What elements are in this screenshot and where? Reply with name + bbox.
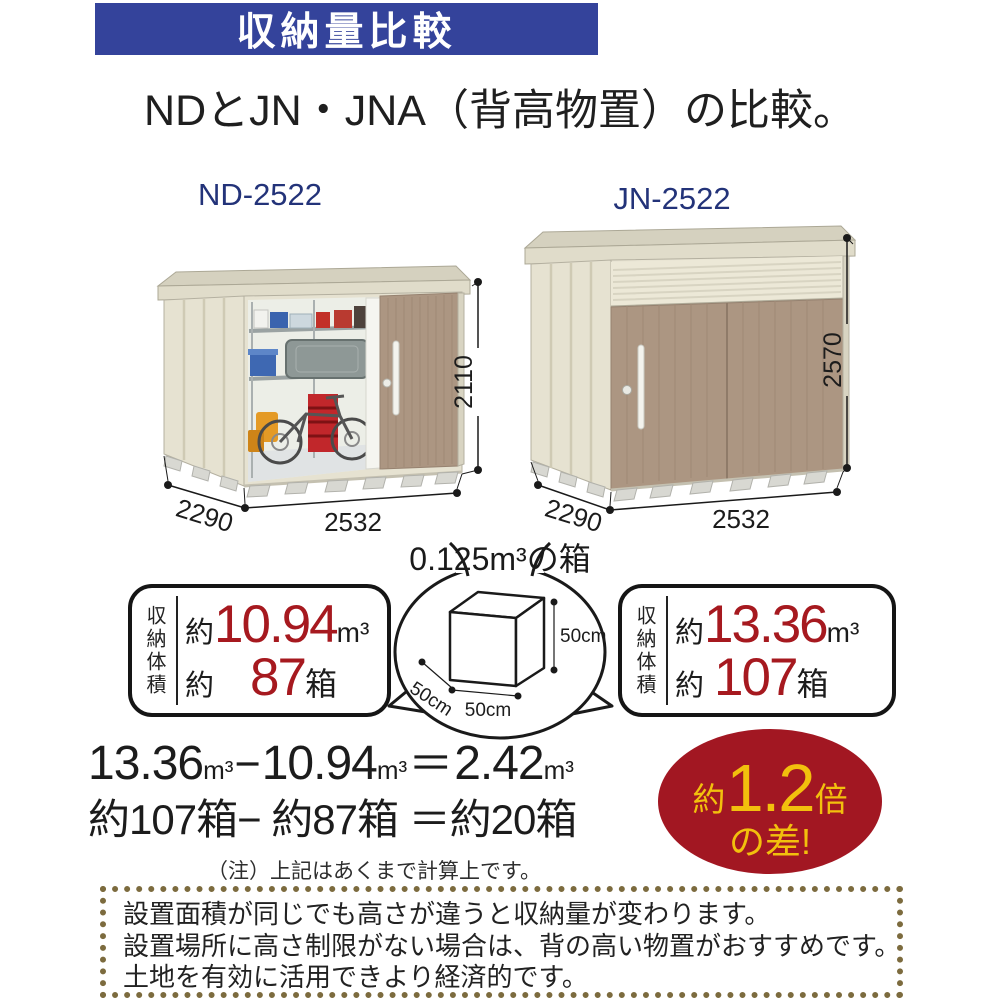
calc-note: （注）上記はあくまで計算上です。 [88,855,660,885]
measuring-cube [450,592,544,686]
volume-approx-left: 約 [185,619,214,648]
badge-prefix: 約 [692,783,725,816]
page-heading: NDとJN・JNA（背高物置）の比較。 [0,76,1000,138]
footer-note-box: 設置面積が同じでも高さが違うと収納量が変わります。 設置場所に高さ制限がない場合… [100,886,903,998]
shed-left-width-label: 2532 [324,507,382,537]
shed-left-height-label: 2110 [450,355,478,409]
title-banner: 収納量比較 [95,3,598,55]
difference-badge: 約 1.2 倍 の差! [658,729,882,874]
calc-line-boxes: 約107箱− 約87箱 ＝約20箱 [88,799,660,841]
calc-v1-unit: m³ [203,757,233,783]
shed-left-side-wall [164,296,244,486]
badge-line2: の差! [658,824,882,860]
minus-sign: − [234,741,260,786]
footer-note-line-2: 設置場所に高さ制限がない場合は、背の高い物置がおすすめです。 [123,931,887,963]
reference-box-title: 0.125m³の箱 [360,534,640,580]
badge-value: 1.2 [726,755,813,822]
stat-divider-right [666,596,668,705]
shed-left-depth-label: 2290 [173,493,237,538]
calc-v2-unit: m³ [377,757,407,783]
calc-v3-unit: m³ [544,757,574,783]
model-label-right: JN-2522 [558,181,786,217]
model-label-left: ND-2522 [140,177,380,213]
boxes-value-right: 107 [714,651,796,704]
cube-height-label: 50cm [560,626,606,647]
door-handle-left [393,341,399,415]
cube-width-label: 50cm [465,700,511,721]
boxes-row-right: 約 107 箱 [675,651,888,704]
infographic-page: 収納量比較 NDとJN・JNA（背高物置）の比較。 ND-2522 JN-252… [0,0,1000,1000]
shed-right-doors [611,299,843,490]
footer-note-line-3: 土地を有効に活用できより経済的です。 [123,962,887,994]
door-handle-right [638,345,644,429]
shed-right-width-label: 2532 [712,504,770,532]
stat-divider-left [176,596,178,705]
shed-left-sliding-door [380,293,458,469]
volume-value-right: 13.36 [704,598,827,651]
volume-row-right: 約 13.36 m³ [675,598,888,651]
title-banner-label: 収納量比較 [236,1,456,57]
boxes-approx-left: 約 [185,672,214,701]
volume-unit-left: m³ [337,619,370,647]
boxes-unit-right: 箱 [796,668,828,700]
stat-box-left: 収納体積 約 10.94 m³ 約 87 箱 [128,584,391,717]
volume-value-left: 10.94 [214,598,337,651]
volume-approx-right: 約 [675,619,704,648]
calc-v2: 10.94 [262,740,377,788]
shed-left-open-door-edge [366,298,380,469]
shed-right-side-wall [531,260,611,490]
footer-note-line-1: 設置面積が同じでも高さが違うと収納量が変わります。 [123,899,887,931]
badge-line1: 約 1.2 倍 [658,755,882,822]
door-lock-left [383,379,391,387]
boxes-approx-right: 約 [675,672,704,701]
shed-right-shutter-band [611,256,843,307]
shed-right-illustration: 2570 2290 2532 [513,218,887,532]
shed-left-illustration: 2110 2290 2532 [138,246,502,538]
badge-suffix: 倍 [815,783,848,816]
volume-row-left: 約 10.94 m³ [185,598,383,651]
calc-v1: 13.36 [88,740,203,788]
calculation-block: 13.36 m³ − 10.94 m³ ＝ 2.42 m³ 約107箱− 約87… [88,740,660,885]
volume-unit-right: m³ [827,619,860,647]
stat-label-right: 収納体積 [622,588,659,713]
shed-right-depth-label: 2290 [542,493,606,532]
boxes-row-left: 約 87 箱 [185,651,383,704]
door-lock-right [623,386,632,395]
boxes-value-left: 87 [250,651,305,704]
stat-label-left: 収納体積 [132,588,169,713]
shed-right-height-label: 2570 [819,332,847,388]
shed-left-interior [248,297,378,482]
stat-box-right: 収納体積 約 13.36 m³ 約 107 箱 [618,584,896,717]
boxes-unit-left: 箱 [305,668,337,700]
